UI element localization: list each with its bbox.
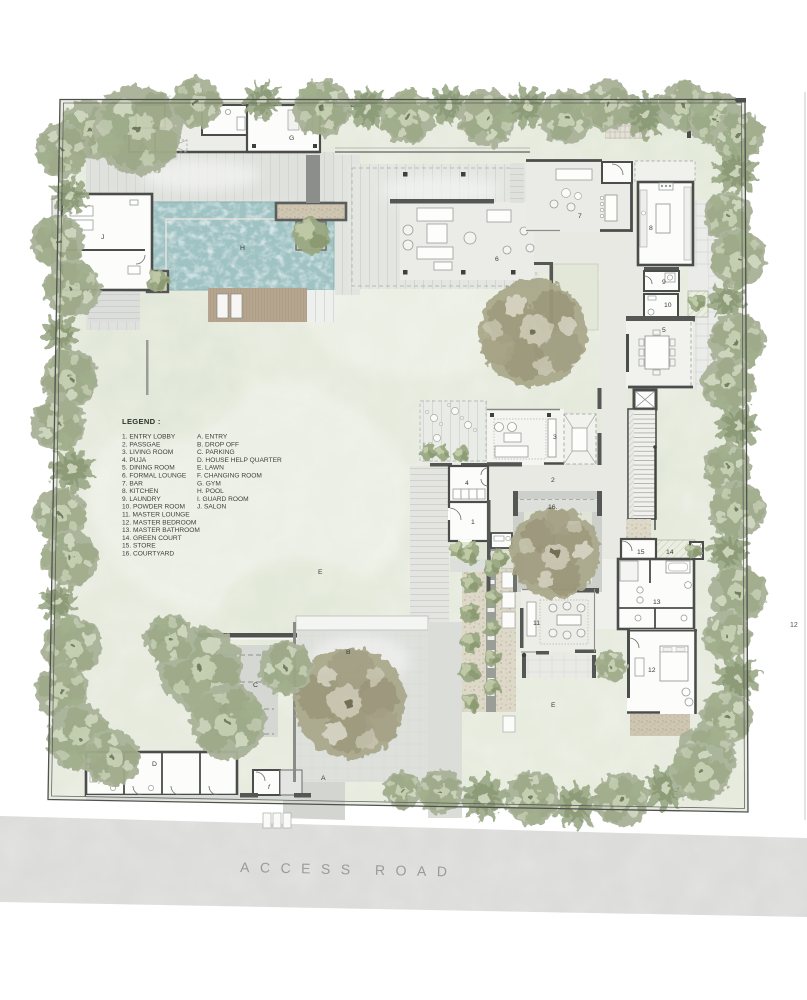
svg-text:2. PASSGAE: 2. PASSGAE	[122, 441, 161, 448]
svg-text:2: 2	[551, 477, 555, 484]
svg-text:14: 14	[666, 549, 674, 556]
svg-text:H: H	[240, 245, 245, 252]
svg-text:13: 13	[653, 599, 661, 606]
svg-text:12: 12	[790, 622, 798, 629]
svg-text:8. KITCHEN: 8. KITCHEN	[122, 488, 159, 495]
svg-text:8: 8	[649, 225, 653, 232]
svg-text:LEGEND :: LEGEND :	[122, 417, 161, 426]
svg-text:7. BAR: 7. BAR	[122, 480, 143, 487]
svg-text:B. DROP OFF: B. DROP OFF	[197, 441, 239, 448]
svg-text:14. GREEN COURT: 14. GREEN COURT	[122, 535, 182, 542]
svg-text:I. GUARD ROOM: I. GUARD ROOM	[197, 496, 249, 503]
svg-text:C. PARKING: C. PARKING	[197, 449, 235, 456]
svg-text:C: C	[253, 682, 258, 689]
svg-text:16.: 16.	[548, 504, 558, 511]
svg-text:5: 5	[662, 327, 666, 334]
svg-text:4. PUJA: 4. PUJA	[122, 457, 147, 464]
svg-text:E: E	[551, 702, 556, 709]
svg-text:A: A	[321, 775, 326, 782]
svg-text:J: J	[101, 234, 104, 241]
svg-text:4: 4	[465, 480, 469, 487]
svg-text:D. HOUSE HELP QUARTER: D. HOUSE HELP QUARTER	[197, 457, 282, 464]
svg-text:11: 11	[533, 620, 540, 627]
svg-text:6. FORMAL LOUNGE: 6. FORMAL LOUNGE	[122, 473, 187, 480]
svg-text:G. GYM: G. GYM	[197, 480, 221, 487]
svg-text:B: B	[346, 649, 351, 656]
svg-text:G: G	[289, 135, 294, 142]
svg-text:D: D	[152, 761, 157, 768]
svg-text:1: 1	[471, 519, 475, 526]
svg-text:A. ENTRY: A. ENTRY	[197, 434, 228, 441]
svg-text:E. LAWN: E. LAWN	[197, 465, 224, 472]
svg-text:H. POOL: H. POOL	[197, 488, 224, 495]
svg-text:5. DINING ROOM: 5. DINING ROOM	[122, 465, 175, 472]
svg-text:10: 10	[664, 302, 672, 309]
svg-text:16. COURTYARD: 16. COURTYARD	[122, 551, 174, 558]
svg-text:15: 15	[637, 549, 645, 556]
svg-text:13. MASTER BATHROOM: 13. MASTER BATHROOM	[122, 527, 200, 534]
svg-text:J. SALON: J. SALON	[197, 504, 227, 511]
svg-text:3. LIVING ROOM: 3. LIVING ROOM	[122, 449, 173, 456]
svg-text:12. MASTER BEDROOM: 12. MASTER BEDROOM	[122, 519, 196, 526]
svg-text:3: 3	[553, 434, 557, 441]
svg-text:9: 9	[662, 279, 666, 286]
svg-text:1. ENTRY LOBBY: 1. ENTRY LOBBY	[122, 434, 176, 441]
svg-text:12: 12	[648, 667, 656, 674]
svg-text:15. STORE: 15. STORE	[122, 543, 156, 550]
svg-text:7: 7	[578, 213, 582, 220]
svg-text:E: E	[318, 569, 323, 576]
svg-text:9. LAUNDRY: 9. LAUNDRY	[122, 496, 161, 503]
svg-text:F. CHANGING ROOM: F. CHANGING ROOM	[197, 473, 262, 480]
svg-text:6: 6	[495, 256, 499, 263]
svg-text:11. MASTER LOUNGE: 11. MASTER LOUNGE	[122, 512, 190, 519]
svg-text:10. POWDER ROOM: 10. POWDER ROOM	[122, 504, 185, 511]
